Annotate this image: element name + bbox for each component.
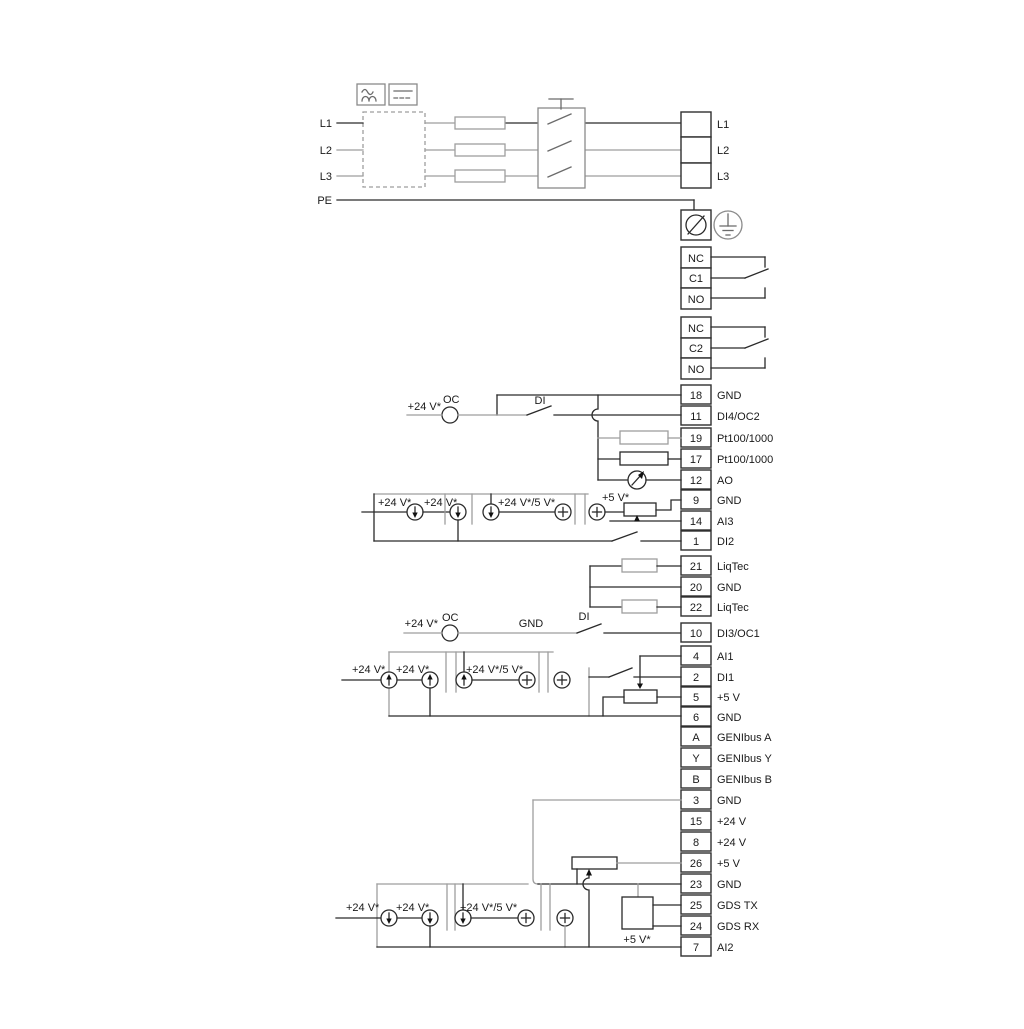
terminal-label: GND: [717, 712, 742, 724]
fuses: [455, 117, 505, 182]
terminal-number: 1: [693, 536, 699, 548]
terminal-label: GND: [717, 795, 742, 807]
terminal-number: 24: [690, 921, 702, 933]
ai1-row-wiring: +24 V* +24 V* +24 V*/5 V*: [342, 652, 681, 716]
wiper-arrow: [637, 684, 643, 690]
sensor-return-wire: [592, 395, 598, 480]
di3-supply-label: +24 V*: [405, 618, 439, 630]
di4-di-label: DI: [535, 395, 546, 407]
ai2-supply1-label: +24 V*: [346, 902, 380, 914]
ai2-supply3-label: +24 V*/5 V*: [460, 902, 518, 914]
ai3-supply3-label: +24 V*/5 V*: [498, 497, 556, 509]
io-terminal-strip: 18 11 19 17 12 9 14 1 GND DI4/OC2 Pt100/…: [681, 385, 773, 550]
di4-oc-label: OC: [443, 394, 460, 406]
terminal-label: LiqTec: [717, 561, 749, 573]
ai2-row-wiring: +24 V* +24 V* +24 V*/5 V*: [336, 800, 681, 947]
input-label-l1: L1: [320, 118, 332, 130]
wiring-diagram: L1 L2 L3 PE: [0, 0, 1024, 1024]
terminal-label: +5 V: [717, 692, 741, 704]
liqtec-terminal-strip: 21 20 22 LiqTec GND LiqTec: [590, 556, 749, 616]
voltage-source-icon: [555, 504, 571, 520]
liqtec-wiring: [590, 559, 681, 613]
di4-supply-label: +24 V*: [408, 401, 442, 413]
main-switch: [538, 99, 585, 188]
di3-gnd-label: GND: [519, 618, 544, 630]
wiring-diagram-page: L1 L2 L3 PE: [0, 0, 1024, 1024]
dc-symbol-icon: [389, 84, 417, 105]
terminal-label: DI3/OC1: [717, 628, 760, 640]
terminal-number: 19: [690, 433, 702, 445]
terminal-number: B: [692, 774, 699, 786]
terminal-label: +24 V: [717, 837, 747, 849]
pe-wire: [337, 200, 694, 210]
liqtec-sensor-resistor: [622, 600, 657, 613]
relay2-no: NO: [688, 364, 705, 376]
ao-gauge-icon: [628, 471, 646, 489]
earth-symbol-icon: [714, 211, 742, 239]
ai3-supply4-label: +5 V*: [602, 492, 630, 504]
terminal-number: 3: [693, 795, 699, 807]
terminal-label: GENIbus A: [717, 732, 772, 744]
terminal-number: 26: [690, 858, 702, 870]
relay2-block: NC C2 NO: [681, 317, 768, 379]
voltage-source-icon: [589, 504, 605, 520]
terminal-label: +5 V: [717, 858, 741, 870]
terminal-number: 6: [693, 712, 699, 724]
terminal-number: 20: [690, 582, 702, 594]
di3-di-label: DI: [579, 611, 590, 623]
terminal-label: GDS TX: [717, 900, 758, 912]
di2-switch-contact: [612, 532, 637, 541]
relay1-no: NO: [688, 294, 705, 306]
input-label-pe: PE: [317, 195, 332, 207]
terminal-label: LiqTec: [717, 602, 749, 614]
pt100-resistor: [620, 431, 668, 444]
gds-module: [622, 897, 653, 929]
terminal-label: DI4/OC2: [717, 411, 760, 423]
terminal-label: GDS RX: [717, 921, 760, 933]
terminal-label: GND: [717, 390, 742, 402]
potentiometer: [624, 690, 657, 703]
rfi-filter-box: [363, 112, 425, 187]
current-source-icon: [381, 910, 397, 926]
open-collector-icon: [442, 407, 458, 423]
terminal-label: DI1: [717, 672, 734, 684]
ai3-row-wiring: +24 V* +24 V* +24 V*/5 V*: [362, 492, 681, 541]
terminal-label: DI2: [717, 536, 734, 548]
terminal-number: 7: [693, 942, 699, 954]
terminal-number: 21: [690, 561, 702, 573]
pe-screw-terminal: [681, 210, 711, 240]
voltage-source-icon: [557, 910, 573, 926]
terminal-number: Y: [692, 753, 700, 765]
terminal-label: AI1: [717, 651, 734, 663]
terminal-number: 25: [690, 900, 702, 912]
di3-row-wiring: +24 V* OC GND DI: [404, 611, 681, 641]
wiper-wire: [583, 875, 589, 947]
input-label-l2: L2: [320, 145, 332, 157]
terminal-number: 2: [693, 672, 699, 684]
terminal-number: 4: [693, 651, 699, 663]
potentiometer: [572, 857, 617, 869]
terminal-number: 14: [690, 516, 702, 528]
current-source-icon: [381, 672, 397, 688]
power-terminal-block: L1 L2 L3: [681, 112, 729, 188]
input-label-l3: L3: [320, 171, 332, 183]
terminal-number: 8: [693, 837, 699, 849]
power-input-section: L1 L2 L3 PE: [317, 84, 742, 240]
terminal-label: GENIbus B: [717, 774, 772, 786]
terminal-number: 10: [690, 628, 702, 640]
di1-switch-contact: [609, 668, 632, 677]
current-source-icon: [483, 504, 499, 520]
current-source-icon: [407, 504, 423, 520]
ac-symbol-icon: [357, 84, 385, 105]
terminal-number: 15: [690, 816, 702, 828]
terminal-number: 5: [693, 692, 699, 704]
potentiometer: [624, 503, 656, 516]
bottom-terminal-strip: 3 15 8 26 23 25 24 7 GND +24 V +24 V +5 …: [681, 790, 760, 956]
relay2-c2: C2: [689, 343, 703, 355]
out-label-l3: L3: [717, 171, 729, 183]
terminal-label: AI2: [717, 942, 734, 954]
terminal-number: 22: [690, 602, 702, 614]
pt100-resistor: [620, 452, 668, 465]
current-source-icon: [450, 504, 466, 520]
relay1-contact: [711, 257, 768, 298]
terminal-label: GENIbus Y: [717, 753, 772, 765]
terminal-label: GND: [717, 495, 742, 507]
terminal-number: 11: [690, 411, 701, 423]
comm-terminal-strip: 10 4 2 5 6 A Y B DI3/OC1 AI1 DI1 +5 V GN…: [681, 623, 772, 788]
ai1-supply3-label: +24 V*/5 V*: [466, 664, 524, 676]
relay1-block: NC C1 NO: [681, 247, 768, 309]
terminal-label: Pt100/1000: [717, 433, 773, 445]
voltage-source-icon: [518, 910, 534, 926]
voltage-source-icon: [554, 672, 570, 688]
terminal-label: GND: [717, 879, 742, 891]
terminal-label: +24 V: [717, 816, 747, 828]
terminal-label: AI3: [717, 516, 734, 528]
relay2-nc: NC: [688, 323, 704, 335]
terminal-number: 23: [690, 879, 702, 891]
wiper-arrow: [586, 869, 592, 876]
current-source-icon: [422, 672, 438, 688]
ai3-supply1-label: +24 V*: [378, 497, 412, 509]
di4-row-wiring: +24 V* OC DI: [407, 394, 681, 489]
ai1-supply1-label: +24 V*: [352, 664, 386, 676]
terminal-label: Pt100/1000: [717, 454, 773, 466]
terminal-label: GND: [717, 582, 742, 594]
di3-oc-label: OC: [442, 612, 459, 624]
relay1-nc: NC: [688, 253, 704, 265]
current-source-icon: [422, 910, 438, 926]
voltage-source-icon: [519, 672, 535, 688]
out-label-l1: L1: [717, 119, 729, 131]
relay1-c1: C1: [689, 273, 703, 285]
terminal-number: 12: [690, 475, 702, 487]
liqtec-sensor-resistor: [622, 559, 657, 572]
terminal-number: 17: [690, 454, 702, 466]
relay2-contact: [711, 327, 768, 368]
ai2-supply4-label: +5 V*: [623, 934, 651, 946]
terminal-label: AO: [717, 475, 733, 487]
open-collector-icon: [442, 625, 458, 641]
terminal-number: 9: [693, 495, 699, 507]
terminal-number: A: [692, 732, 700, 744]
out-label-l2: L2: [717, 145, 729, 157]
phase-wires: [337, 123, 681, 176]
terminal-number: 18: [690, 390, 702, 402]
